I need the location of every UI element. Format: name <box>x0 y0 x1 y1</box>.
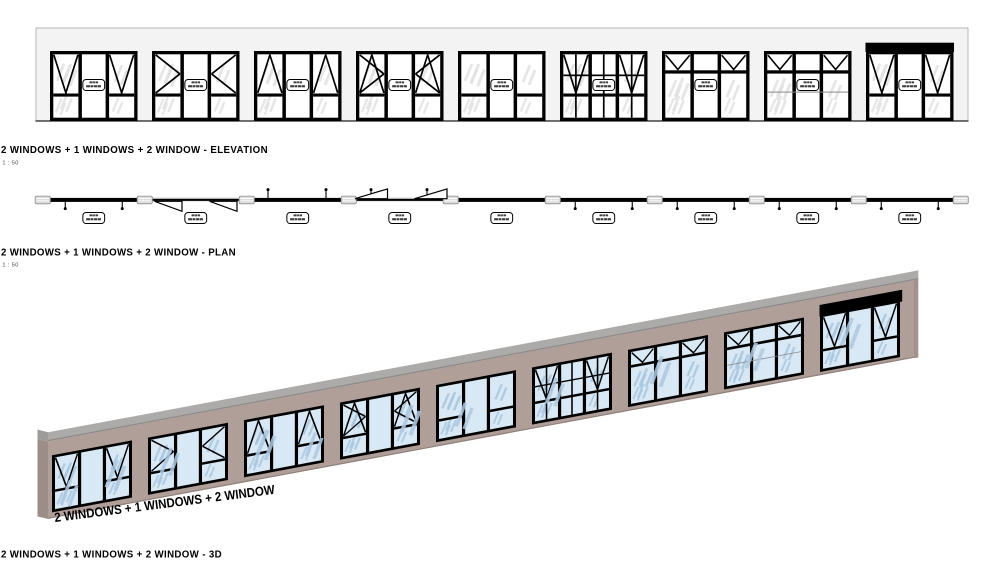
svg-text:1 : 50: 1 : 50 <box>2 263 18 269</box>
svg-text:2 WINDOWS + 1 WINDOWS + 2 WIND: 2 WINDOWS + 1 WINDOWS + 2 WINDOW - ELEVA… <box>1 145 268 156</box>
svg-text:2 WINDOWS + 1 WINDOWS + 2 WIND: 2 WINDOWS + 1 WINDOWS + 2 WINDOW - PLAN <box>1 247 236 258</box>
svg-text:2 WINDOWS + 1 WINDOWS + 2 WIND: 2 WINDOWS + 1 WINDOWS + 2 WINDOW - 3D <box>1 549 222 560</box>
svg-text:1 : 50: 1 : 50 <box>2 161 18 167</box>
